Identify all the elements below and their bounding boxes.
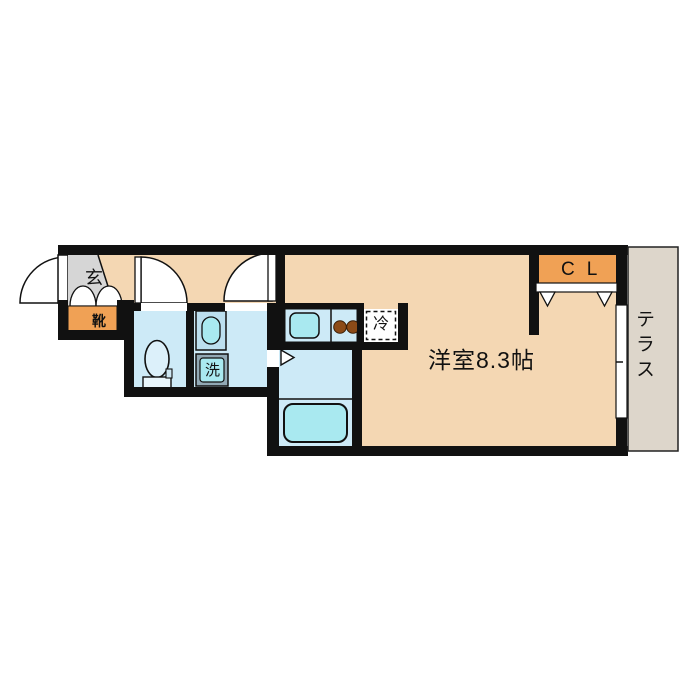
washroom-door-gap bbox=[225, 303, 267, 311]
toilet-door-gap bbox=[141, 303, 187, 311]
terrace-label: テラス bbox=[634, 309, 653, 384]
washroom-door-leaf bbox=[268, 253, 276, 301]
toilet-icon bbox=[145, 341, 169, 378]
stove-burner-icon bbox=[334, 321, 347, 334]
toilet-door-leaf bbox=[135, 257, 141, 303]
closet-door-track bbox=[536, 283, 617, 292]
kitchen-sink-icon bbox=[290, 313, 319, 338]
closet-label: CL bbox=[561, 260, 609, 279]
shoe-cabinet-label: 靴 bbox=[92, 314, 106, 328]
entrance-label: 玄 bbox=[85, 269, 103, 287]
floorplan-image: 玄 靴 洗 冷 洋室8.3帖 CL テラス bbox=[0, 0, 700, 700]
refrigerator-label: 冷 bbox=[373, 317, 389, 333]
toilet-spud bbox=[166, 369, 172, 378]
washbasin-bowl-icon bbox=[202, 317, 220, 344]
main-room-label: 洋室8.3帖 bbox=[428, 349, 535, 372]
bathtub-icon bbox=[284, 404, 347, 442]
floorplan-drawing bbox=[0, 0, 700, 700]
bath-door-gap bbox=[267, 350, 279, 367]
entrance-door-leaf bbox=[58, 255, 68, 303]
washing-machine-label: 洗 bbox=[205, 363, 220, 378]
